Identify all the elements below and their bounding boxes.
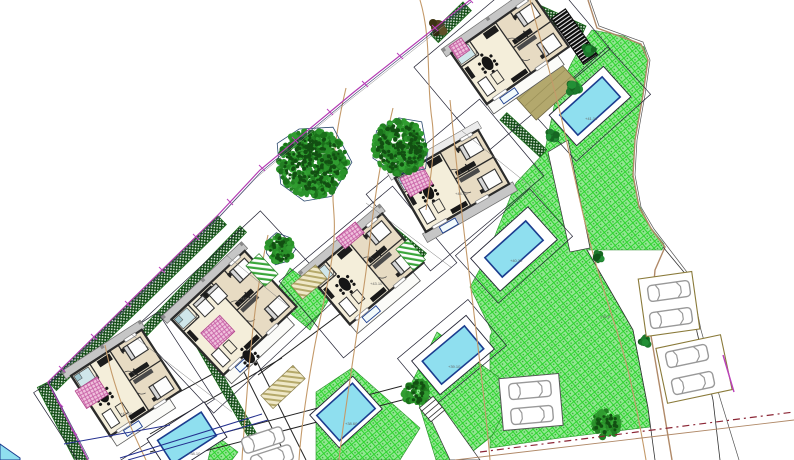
- svg-text:+40.10: +40.10: [510, 258, 523, 263]
- svg-text:+38.10: +38.10: [188, 451, 201, 456]
- svg-text:+39.10: +39.10: [448, 364, 461, 369]
- svg-text:+43.10: +43.10: [370, 281, 383, 286]
- svg-text:+41.10: +41.10: [585, 116, 598, 121]
- svg-text:+38.60: +38.60: [345, 421, 358, 426]
- svg-text:+39.8: +39.8: [600, 314, 611, 319]
- svg-text:+44.10: +44.10: [455, 191, 468, 196]
- svg-text:+42.50: +42.50: [120, 411, 133, 416]
- svg-text:+43.30: +43.30: [240, 296, 253, 301]
